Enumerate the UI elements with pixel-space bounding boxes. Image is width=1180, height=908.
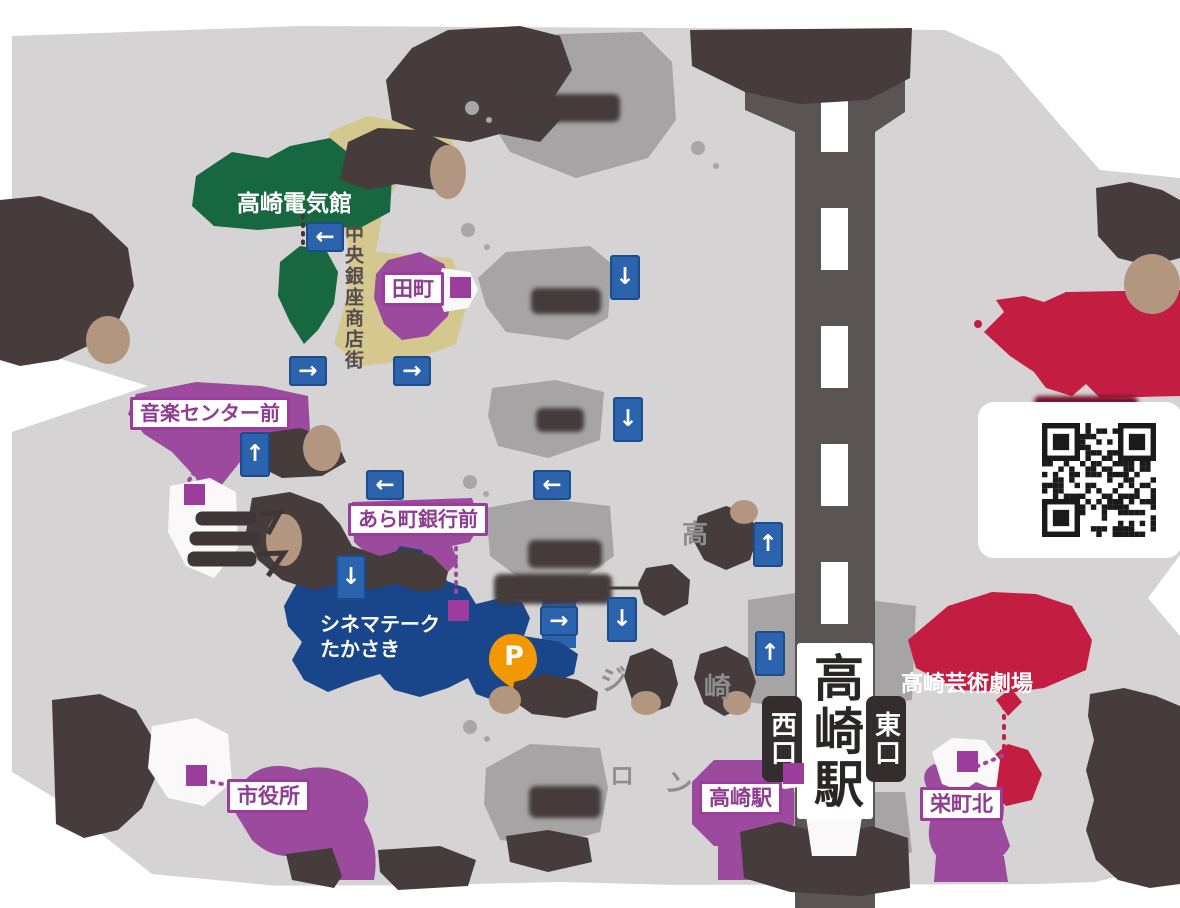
bus-stop-marker [957, 751, 978, 772]
route-arrow-left-icon: ← [533, 470, 571, 500]
gray-text-fragment: ジ [597, 656, 629, 698]
gray-text-fragment: ロ [610, 756, 634, 791]
route-arrow-down-icon: ↓ [607, 597, 637, 642]
bus-stop-marker [450, 277, 471, 298]
bus-stop-marker [184, 484, 205, 505]
cinematheque-label: シネマテーク たかさき [320, 612, 440, 662]
blurred-street-text [536, 408, 584, 432]
blurred-street-text [531, 288, 601, 314]
blurred-street-text [500, 94, 620, 122]
blurred-street-text [529, 786, 601, 818]
route-arrow-up-icon: ↑ [240, 432, 270, 477]
denkikan-label: 高崎電気館 [237, 184, 352, 218]
route-arrow-right-icon: → [289, 356, 327, 386]
gray-text-fragment: 崎 [704, 666, 731, 705]
takasaki-access-map: 高崎電気館 中央銀座商店街 シネマテーク たかさき 高崎芸術劇場 田町 音楽セン… [0, 0, 1180, 908]
blurred-street-text [494, 574, 612, 604]
route-arrow-right-icon: → [393, 356, 431, 386]
route-arrow-up-icon: ↑ [753, 522, 783, 567]
takasaki-station: 高崎駅 [797, 643, 873, 819]
geijutsu-gekijo-label: 高崎芸術劇場 [901, 666, 1033, 698]
gray-text-fragment: 高 [682, 514, 708, 551]
bus-stop-aramachi-ginko-mae: あら町銀行前 [348, 503, 488, 536]
route-arrow-left-icon: ← [306, 222, 344, 252]
bus-stop-marker [783, 763, 804, 784]
bus-stop-ongaku-center-mae: 音楽センター前 [130, 397, 290, 430]
route-arrow-down-icon: ↓ [613, 397, 643, 442]
bus-stop-marker [448, 600, 469, 621]
blurred-street-text [528, 540, 602, 568]
route-arrow-down-icon: ↓ [336, 555, 366, 600]
qr-code [1042, 423, 1156, 537]
route-arrow-down-icon: ↓ [610, 255, 640, 300]
bus-stop-sakaecho-kita: 栄町北 [920, 787, 1003, 821]
route-arrow-left-icon: ← [366, 470, 404, 500]
east-exit-sign: 東口 [866, 696, 906, 782]
route-arrow-right-icon: → [540, 606, 578, 636]
bus-stop-marker [186, 765, 207, 786]
parking-letter: P [500, 641, 528, 672]
bus-stop-takasaki-eki: 高崎駅 [699, 781, 782, 815]
chuo-ginza-street-label: 中央銀座商店街 [340, 224, 367, 374]
route-arrow-up-icon: ↑ [755, 631, 785, 676]
bus-stop-shiyakusho: 市役所 [227, 779, 310, 813]
bus-stop-tamachi: 田町 [382, 272, 444, 306]
